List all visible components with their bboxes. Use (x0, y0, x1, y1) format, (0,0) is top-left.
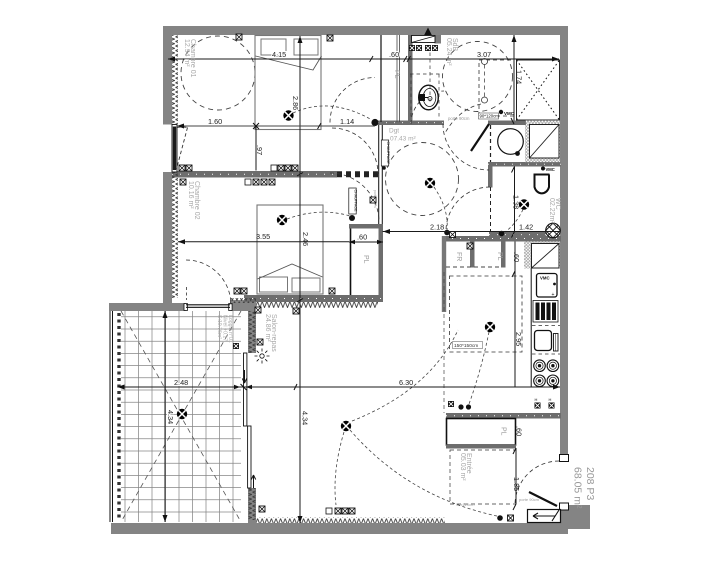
svg-text:4.15: 4.15 (272, 50, 286, 59)
svg-text:.60: .60 (515, 426, 524, 436)
svg-text:porte 90cm: porte 90cm (519, 497, 540, 502)
svg-text:VMC: VMC (546, 167, 555, 172)
svg-text:2.86: 2.86 (291, 96, 300, 110)
svg-text:1.42: 1.42 (519, 223, 533, 232)
svg-text:07.43 m²: 07.43 m² (390, 136, 416, 143)
svg-text:.60: .60 (512, 252, 521, 262)
svg-text:2.48: 2.48 (174, 378, 188, 387)
svg-text:VMC: VMC (504, 111, 515, 116)
svg-text:4.34: 4.34 (301, 411, 310, 425)
svg-text:3.07: 3.07 (477, 50, 491, 59)
svg-text:2.46: 2.46 (301, 232, 310, 246)
svg-text:Dgt: Dgt (389, 128, 399, 135)
svg-text:1.74: 1.74 (515, 70, 524, 84)
svg-text:4.34: 4.34 (166, 410, 175, 424)
svg-text:Loggia n°01Nivel +0.17S:10.76m: Loggia n°01Nivel +0.17S:10.76m² (216, 315, 233, 343)
svg-text:porte 90cm: porte 90cm (448, 116, 470, 121)
svg-text:H: H (535, 397, 538, 402)
svg-text:CHAUFFAGE: CHAUFFAGE (354, 190, 358, 213)
svg-text:+: + (552, 292, 555, 298)
svg-text:.97: .97 (255, 145, 264, 155)
svg-text:1.60: 1.60 (208, 117, 222, 126)
svg-text:90*120cm: 90*120cm (480, 114, 500, 119)
svg-text:VMC: VMC (540, 276, 550, 281)
svg-text:1.14: 1.14 (340, 117, 354, 126)
svg-text:1.38: 1.38 (512, 195, 521, 209)
svg-text:150*150cm: 150*150cm (454, 343, 478, 349)
svg-text:2.95: 2.95 (514, 332, 523, 346)
svg-text:6.30: 6.30 (399, 378, 413, 387)
svg-text:1.85: 1.85 (512, 477, 521, 491)
svg-text:PL: PL (393, 70, 400, 79)
svg-text:PL: PL (500, 427, 507, 436)
svg-text:3.55: 3.55 (256, 232, 270, 241)
svg-text:.60: .60 (357, 233, 367, 242)
svg-text:FR: FR (455, 252, 462, 261)
svg-text:2.18: 2.18 (430, 223, 444, 232)
svg-text:.60: .60 (389, 50, 399, 59)
svg-text:H: H (549, 397, 552, 402)
svg-text:PL: PL (362, 255, 369, 264)
svg-text:PL: PL (496, 252, 503, 261)
svg-text:90x120cm: 90x120cm (456, 502, 475, 507)
svg-text:CHAUFFAGE: CHAUFFAGE (386, 142, 390, 165)
